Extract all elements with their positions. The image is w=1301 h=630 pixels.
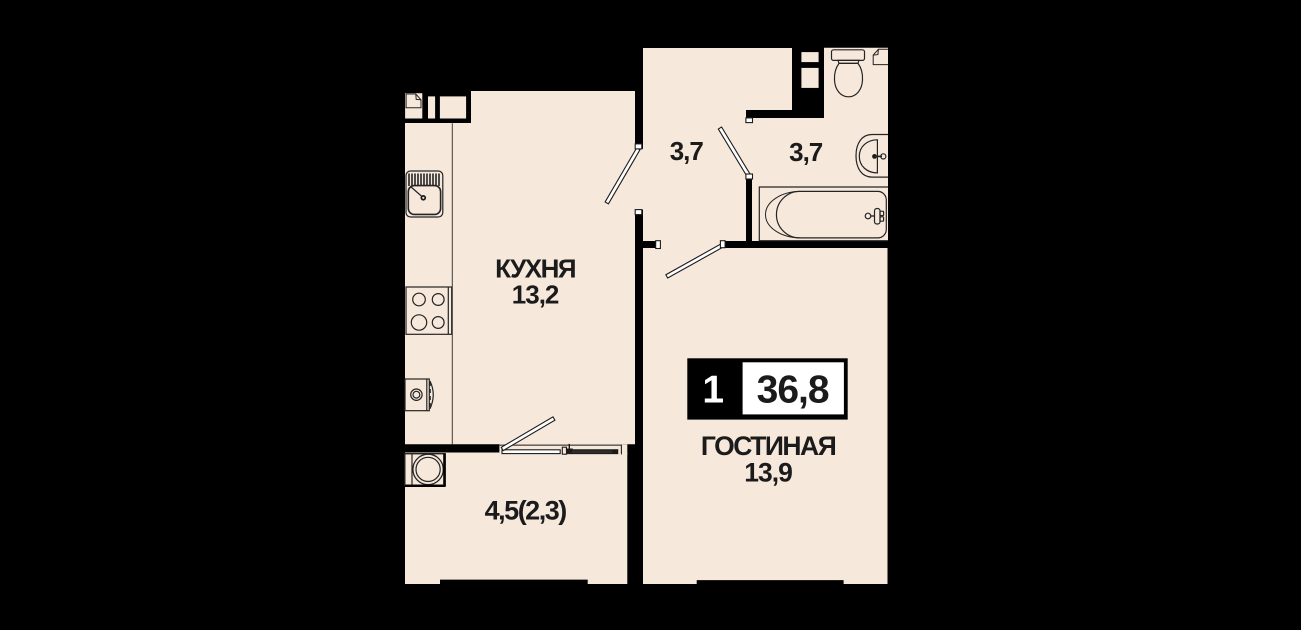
svg-text:ГОСТИНАЯ: ГОСТИНАЯ: [701, 431, 836, 461]
svg-text:1: 1: [702, 369, 724, 412]
svg-text:13,2: 13,2: [512, 280, 559, 310]
svg-text:13,9: 13,9: [744, 458, 792, 488]
svg-text:4,5(2,3): 4,5(2,3): [485, 496, 567, 526]
svg-text:3,7: 3,7: [670, 136, 704, 166]
svg-text:36,8: 36,8: [757, 369, 829, 412]
svg-text:3,7: 3,7: [789, 137, 823, 167]
